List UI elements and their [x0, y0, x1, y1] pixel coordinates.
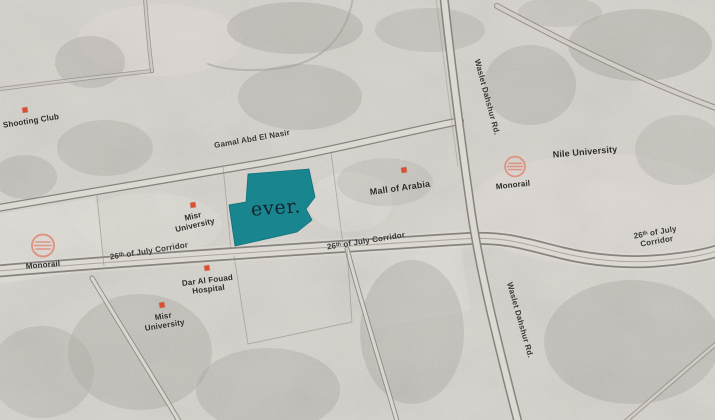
poi-marker-mall-of-arabia [401, 167, 407, 173]
poi-marker-misr-university-lower [159, 302, 165, 308]
poi-marker-misr-university-upper [190, 202, 196, 208]
poi-marker-shooting-club [22, 107, 28, 113]
corridor-left-label: 26ᵗʰ of July Corridor [109, 240, 188, 261]
monorail-left-label: Monorail [25, 259, 60, 271]
poi-marker-dar-al-fouad [204, 265, 210, 271]
location-map: Shooting Club Gamal Abd El Nasir Misr Un… [0, 0, 715, 420]
corridor-right-label: 26ᵗʰ of July Corridor [625, 223, 686, 251]
misr-university-lower-label: Misr University [143, 309, 186, 333]
dar-al-fouad-label: Dar Al Fouad Hospital [181, 273, 234, 297]
misr-university-upper-label: Misr University [172, 208, 215, 235]
mall-of-arabia-label: Mall of Arabia [369, 179, 431, 198]
labels-layer: Shooting Club Gamal Abd El Nasir Misr Un… [0, 0, 715, 420]
ever-site-label: ever. [250, 195, 302, 220]
corridor-middle-label: 26ᵗʰ of July Corridor [326, 230, 405, 251]
shooting-club-label: Shooting Club [2, 112, 59, 130]
gamal-road-label: Gamal Abd El Nasir [213, 128, 290, 150]
nile-university-label: Nile University [552, 144, 617, 160]
waslet-dahshur-bottom-label: Waslet Dahshur Rd. [505, 281, 535, 358]
waslet-dahshur-top-label: Waslet Dahshur Rd. [472, 58, 501, 136]
